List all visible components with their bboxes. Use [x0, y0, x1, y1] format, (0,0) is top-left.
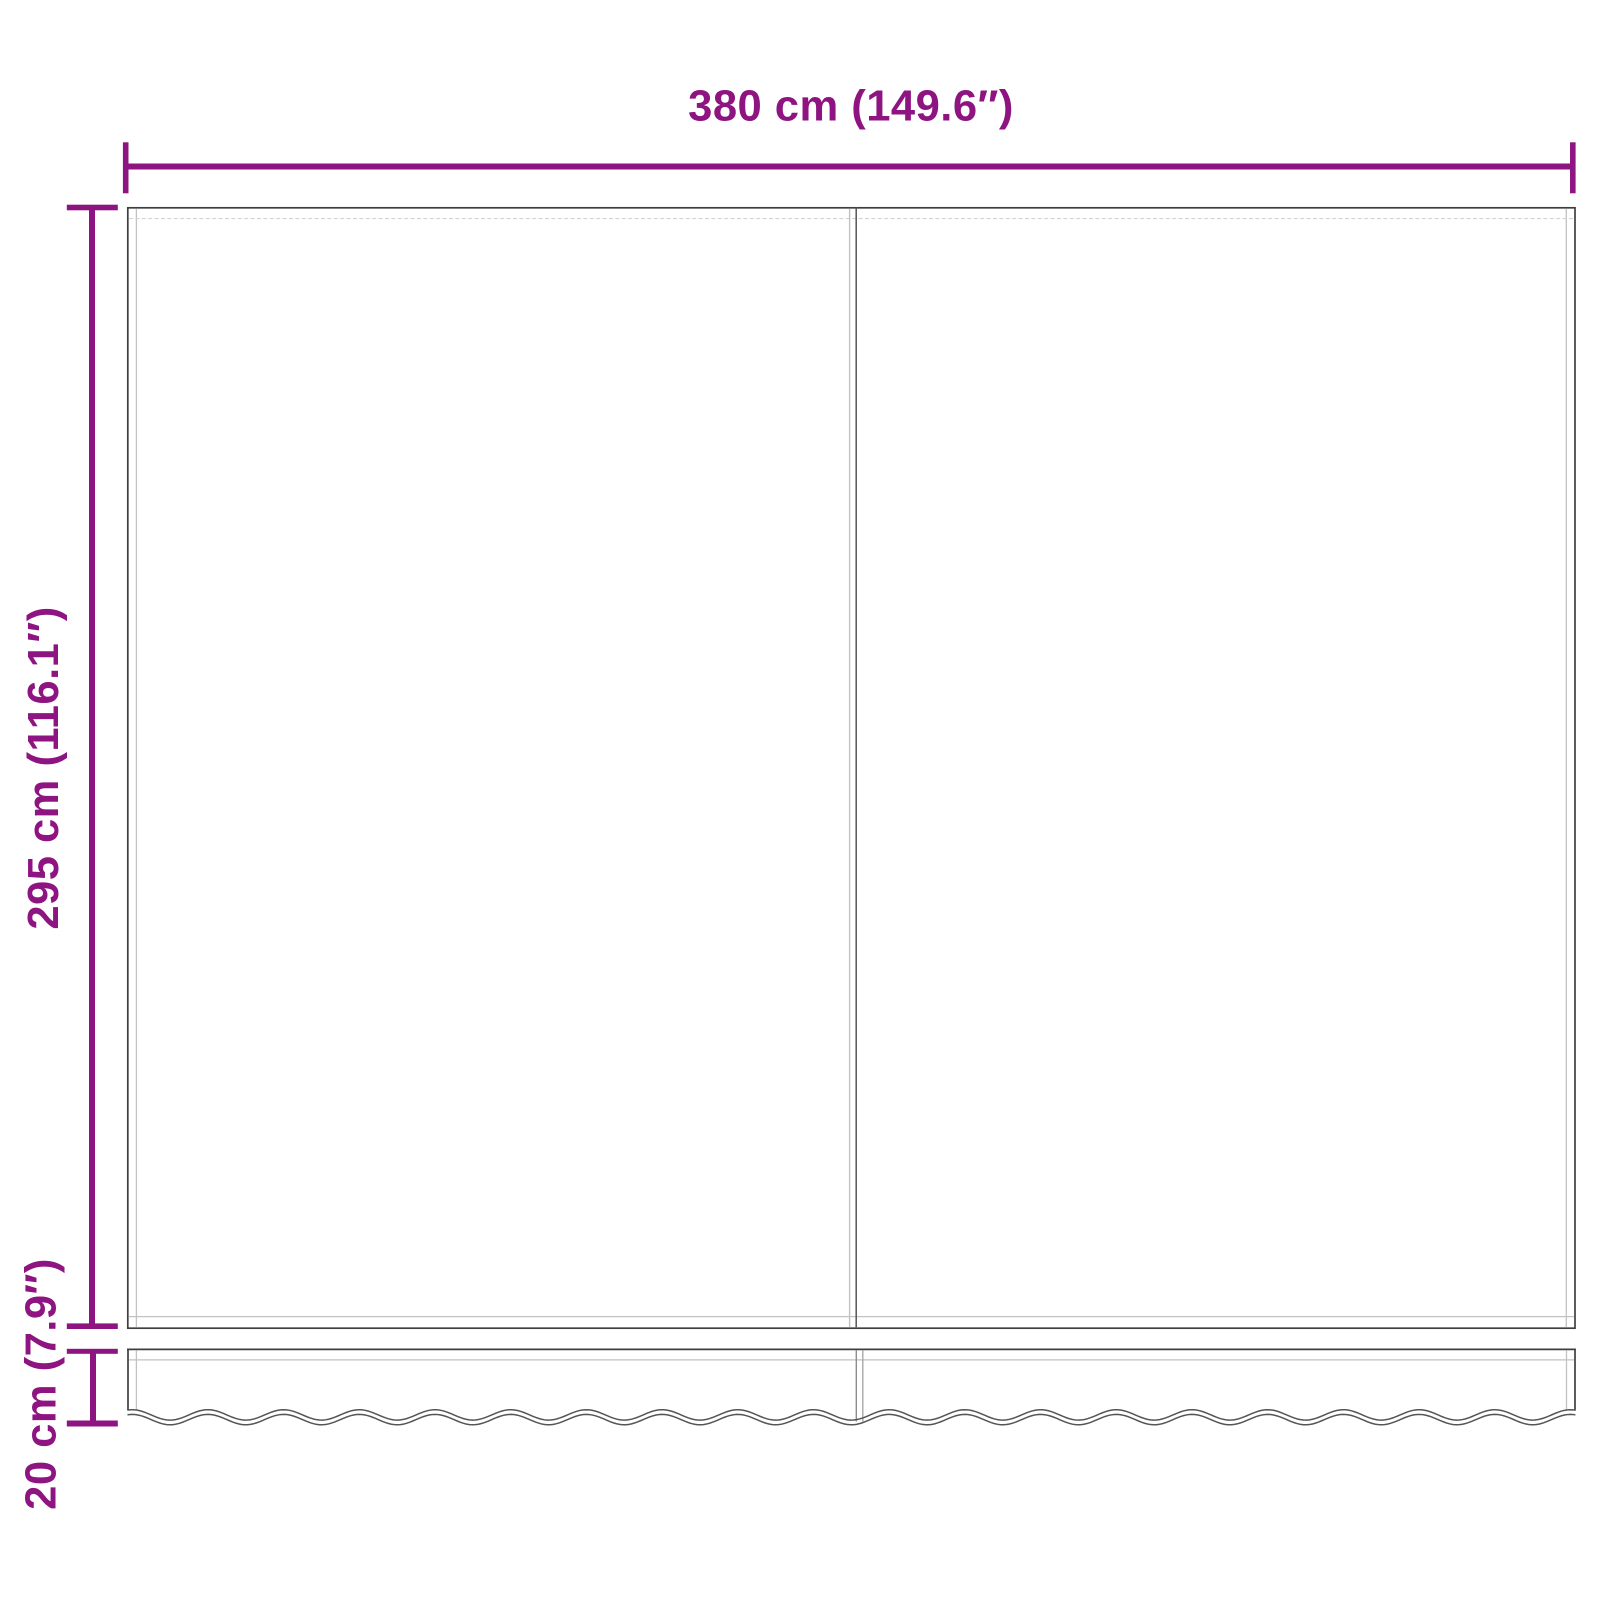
svg-text:295 cm (116.1″): 295 cm (116.1″) [20, 606, 68, 929]
svg-text:380 cm (149.6″): 380 cm (149.6″) [688, 83, 1014, 131]
svg-text:20 cm (7.9″): 20 cm (7.9″) [17, 1258, 65, 1510]
